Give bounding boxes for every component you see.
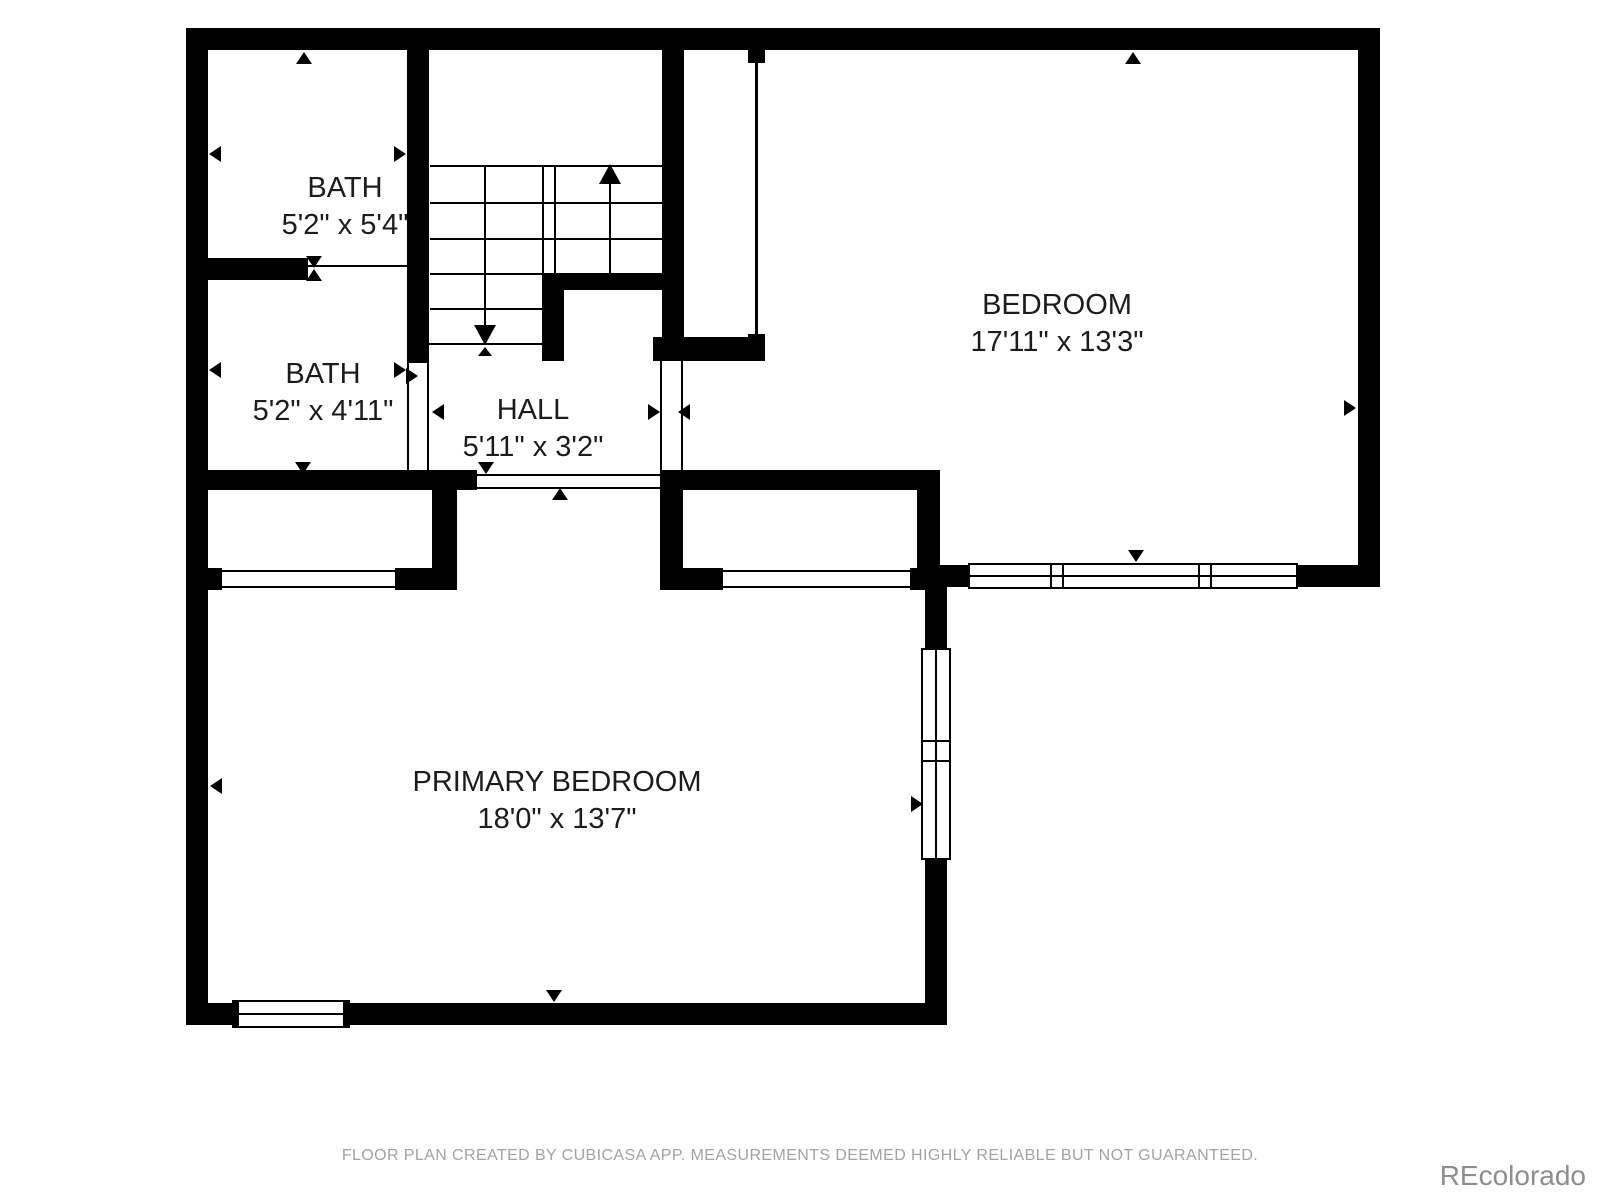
wall-left	[186, 28, 208, 1025]
room-name: BATH	[198, 356, 448, 393]
door-marker-up-icon	[306, 269, 322, 281]
arrow-right-icon	[911, 796, 923, 812]
left-closet-opening-line-bottom	[222, 586, 395, 588]
room-label-primary-bedroom: PRIMARY BEDROOM 18'0" x 13'7"	[407, 764, 707, 838]
room-label-bath-top: BATH 5'2" x 5'4"	[220, 170, 470, 244]
window-center-line	[935, 650, 937, 858]
stairs-up-arrow-icon	[599, 164, 621, 184]
arrow-up-icon	[1125, 52, 1141, 64]
railing-cap-top	[748, 50, 765, 63]
hall-opening-line-top	[477, 474, 662, 476]
room-name: PRIMARY BEDROOM	[407, 764, 707, 801]
stairs-up-walkline	[609, 184, 611, 273]
closet-door-marker-icon	[295, 462, 311, 474]
stairs-down-arrow-icon	[474, 325, 496, 345]
window-center-line	[234, 1013, 348, 1015]
stair-tread	[430, 165, 663, 167]
wall-center-closet-top	[660, 470, 940, 490]
room-dims: 18'0" x 13'7"	[407, 801, 707, 838]
wall-bath-divider	[186, 258, 308, 280]
arrow-left-icon	[210, 778, 222, 794]
window-mid-wall	[921, 648, 951, 860]
room-dims: 5'2" x 5'4"	[220, 207, 470, 244]
wall-center-closet-left-foot	[660, 568, 723, 590]
wall-stair-landing-top	[542, 273, 667, 290]
hall-opening-marker-icon	[552, 488, 568, 500]
center-closet-opening-line-bottom	[723, 586, 910, 588]
window-mullion	[1210, 565, 1212, 587]
arrow-down-icon	[546, 990, 562, 1002]
bedroom-door-marker-icon	[678, 404, 690, 420]
center-closet-opening-line-top	[723, 570, 910, 572]
wall-stair-landing-left	[542, 290, 564, 361]
railing-line	[755, 63, 758, 334]
stair-divider-line	[542, 165, 544, 273]
wall-left-closet-stub	[208, 568, 222, 590]
window-mullion	[923, 740, 949, 742]
hall-opening-line-bottom	[477, 487, 662, 489]
room-dims: 5'11" x 3'2"	[408, 429, 658, 466]
window-primary-south	[232, 1000, 350, 1028]
wall-right	[1358, 28, 1380, 587]
room-label-bedroom: BEDROOM 17'11" x 13'3"	[907, 287, 1207, 361]
room-name: BATH	[220, 170, 470, 207]
wall-top	[186, 28, 1380, 50]
wall-center-closet-right-foot	[910, 568, 940, 590]
stair-divider-line	[554, 165, 556, 273]
room-label-hall: HALL 5'11" x 3'2"	[408, 392, 658, 466]
window-mullion	[1050, 565, 1052, 587]
left-closet-opening-line-top	[222, 570, 395, 572]
stair-tread	[430, 308, 542, 310]
stair-entry-marker-icon	[478, 347, 492, 356]
wall-left-closet-foot	[395, 568, 457, 590]
window-mullion	[1062, 565, 1064, 587]
bedroom-door-jamb-left	[660, 361, 662, 470]
room-dims: 17'11" x 13'3"	[907, 324, 1207, 361]
arrow-right-icon	[394, 146, 406, 162]
stair-tread	[430, 273, 542, 275]
room-name: HALL	[408, 392, 658, 429]
arrow-right-icon	[1344, 400, 1356, 416]
room-name: BEDROOM	[907, 287, 1207, 324]
window-end-cap	[343, 1002, 348, 1026]
arrow-up-icon	[296, 52, 312, 64]
window-center-line	[970, 575, 1296, 577]
door-marker-down-icon	[306, 256, 322, 268]
floor-plan: BATH 5'2" x 5'4" BATH 5'2" x 4'11" HALL …	[0, 0, 1600, 1200]
bath-top-door-opening-line	[308, 265, 407, 267]
wall-stairs-right	[662, 50, 684, 345]
window-mullion	[1198, 565, 1200, 587]
disclaimer-text: FLOOR PLAN CREATED BY CUBICASA APP. MEAS…	[0, 1147, 1600, 1165]
arrow-left-icon	[209, 146, 221, 162]
watermark-text: REcolorado	[1440, 1160, 1586, 1192]
railing-cap-bottom	[748, 334, 765, 361]
window-bedroom-south	[968, 563, 1298, 589]
window-mullion	[923, 760, 949, 762]
stairs-down-walkline	[484, 165, 486, 325]
arrow-down-icon	[1128, 550, 1144, 562]
